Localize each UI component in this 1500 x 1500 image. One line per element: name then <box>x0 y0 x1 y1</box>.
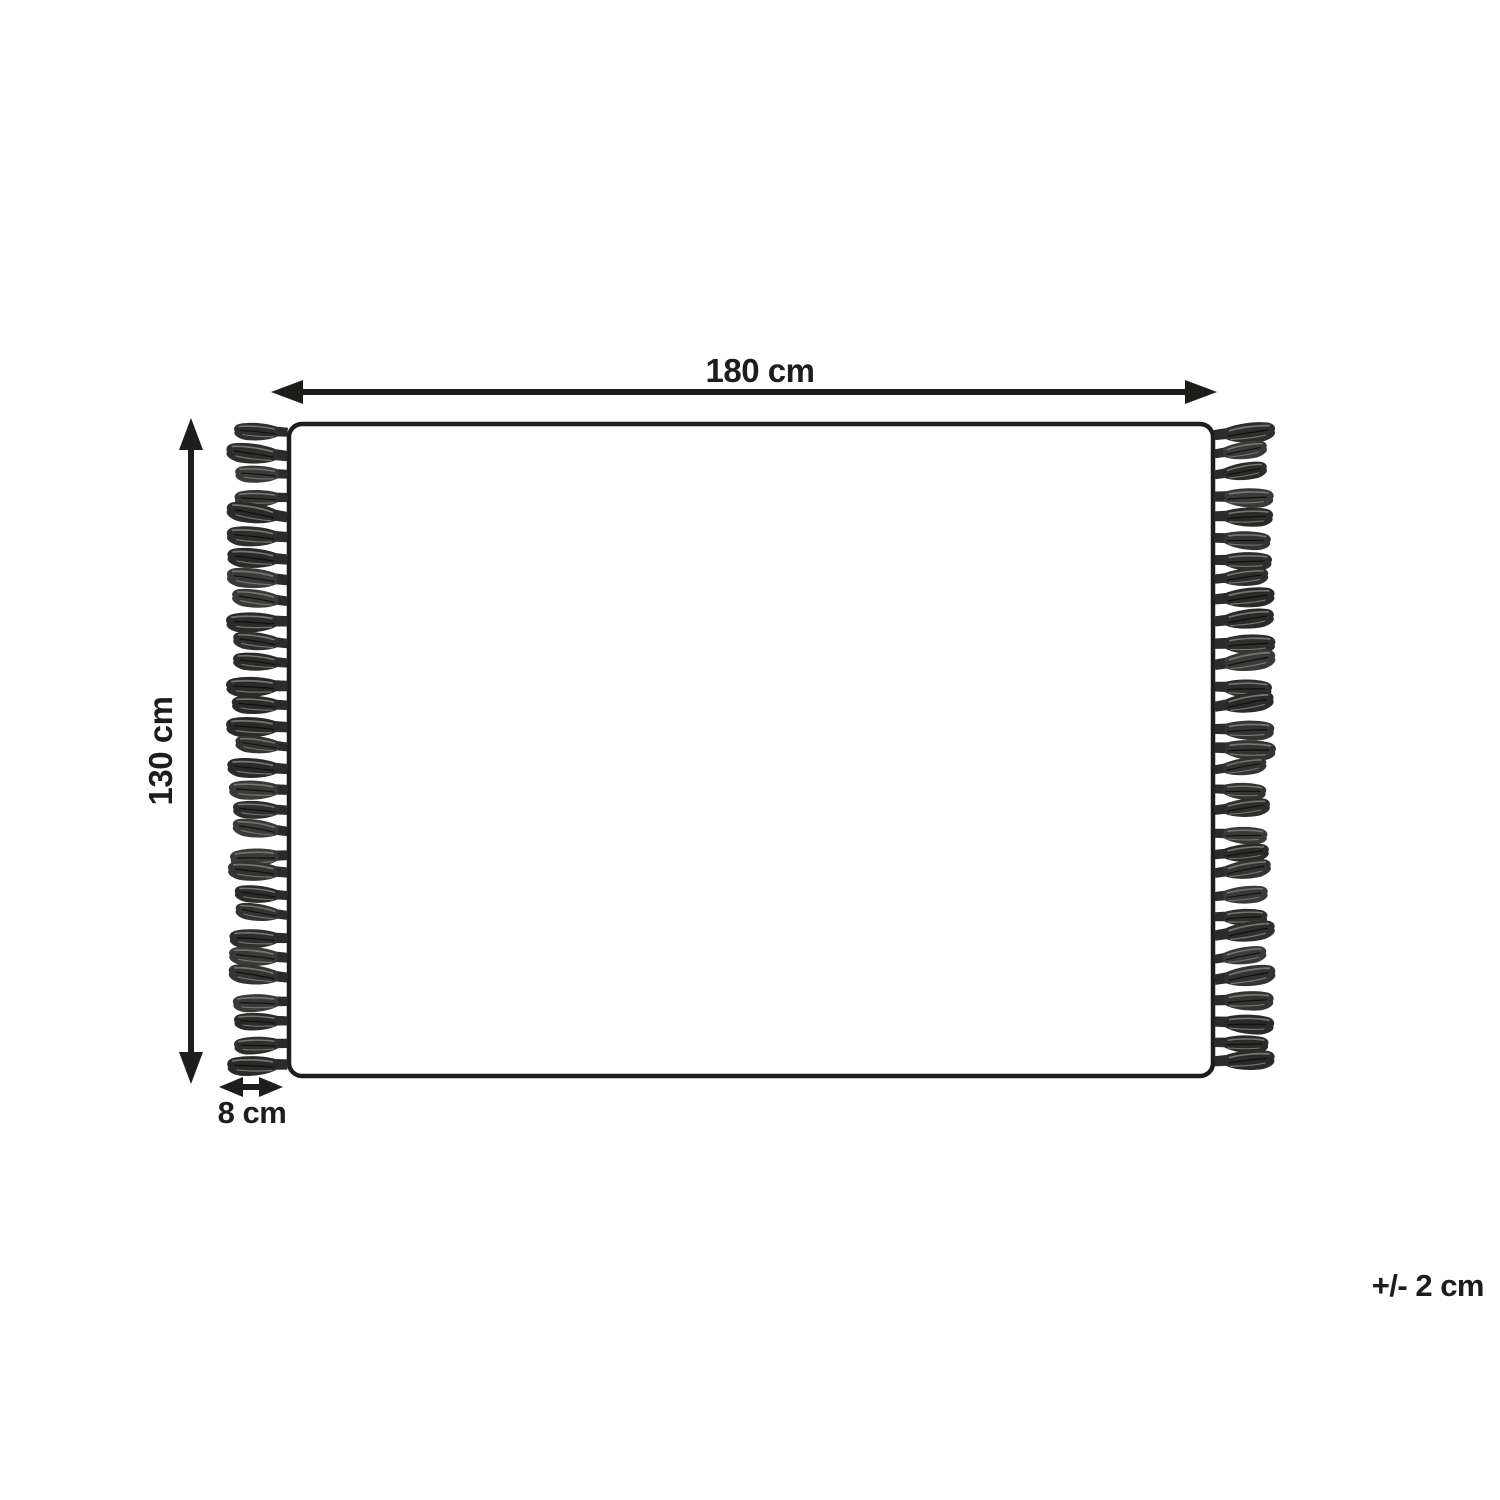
diagram-canvas: 180 cm 130 cm 8 cm +/- 2 cm <box>0 0 1500 1500</box>
tassel <box>227 758 288 778</box>
tassel <box>1214 567 1269 587</box>
width-arrowhead-left-icon <box>271 380 303 404</box>
tassel <box>1214 587 1275 609</box>
tassel <box>233 631 289 652</box>
tassel <box>235 902 289 924</box>
tassel <box>233 801 288 819</box>
tassel <box>227 1054 289 1077</box>
tassel-arrowhead-left-icon <box>219 1077 243 1097</box>
tassel <box>228 963 289 986</box>
tassel <box>1213 858 1272 882</box>
tassel <box>1214 506 1274 528</box>
height-dimension-arrow: 130 cm <box>142 418 203 1084</box>
tassel <box>1213 690 1275 715</box>
height-dimension-label: 130 cm <box>142 697 179 806</box>
tassel <box>226 716 288 737</box>
tassel <box>233 652 288 671</box>
tassel <box>227 548 288 569</box>
tassel <box>1213 797 1270 818</box>
tassel <box>1213 718 1274 741</box>
tolerance-label: +/- 2 cm <box>1372 1268 1484 1303</box>
width-dimension-label: 180 cm <box>706 352 815 389</box>
tassel <box>234 885 288 904</box>
tassel <box>1214 421 1276 444</box>
tassel <box>226 500 290 526</box>
tassel <box>1213 964 1276 989</box>
tassel <box>233 1034 288 1056</box>
tassel <box>226 610 289 633</box>
tassel <box>232 818 289 840</box>
tassel <box>1213 608 1274 631</box>
width-arrowhead-right-icon <box>1185 380 1217 404</box>
tassel <box>227 526 288 546</box>
tassel <box>226 442 289 465</box>
height-arrowhead-bottom-icon <box>179 1052 203 1084</box>
tassel <box>1214 885 1269 905</box>
tassel <box>234 1011 289 1031</box>
tassel <box>226 567 288 589</box>
tassel <box>229 928 288 949</box>
tassel <box>1213 945 1267 967</box>
height-arrowhead-top-icon <box>179 418 203 450</box>
tassel <box>1213 919 1276 945</box>
tassel <box>1213 648 1277 674</box>
tassel <box>235 735 289 755</box>
tassel <box>1214 990 1274 1011</box>
tassel <box>231 588 288 610</box>
tassel <box>235 465 288 483</box>
tassel <box>1213 440 1268 462</box>
width-dimension-arrow: 180 cm <box>271 352 1217 404</box>
rug-dimension-diagram: 180 cm 130 cm 8 cm +/- 2 cm <box>0 0 1500 1500</box>
tassel <box>1213 528 1271 552</box>
tassel <box>1213 756 1267 778</box>
tassel-length-label: 8 cm <box>218 1095 287 1130</box>
tassel <box>1213 460 1268 482</box>
tassel-arrowhead-right-icon <box>259 1077 283 1097</box>
tassel <box>232 992 288 1014</box>
tassel-fringe-left <box>226 423 290 1077</box>
tassel-length-dimension-arrow: 8 cm <box>218 1077 287 1130</box>
tassel <box>229 946 288 966</box>
tassel-fringe-right <box>1213 421 1277 1070</box>
rug-outline <box>289 424 1213 1076</box>
tassel <box>226 675 289 698</box>
tassel <box>229 779 289 800</box>
tassel <box>1213 1011 1275 1036</box>
tassel <box>1213 486 1274 509</box>
tassel <box>1213 824 1268 846</box>
tassel <box>234 423 288 441</box>
tassel <box>1214 1050 1275 1071</box>
tassel <box>232 695 288 714</box>
tassel <box>228 861 289 882</box>
